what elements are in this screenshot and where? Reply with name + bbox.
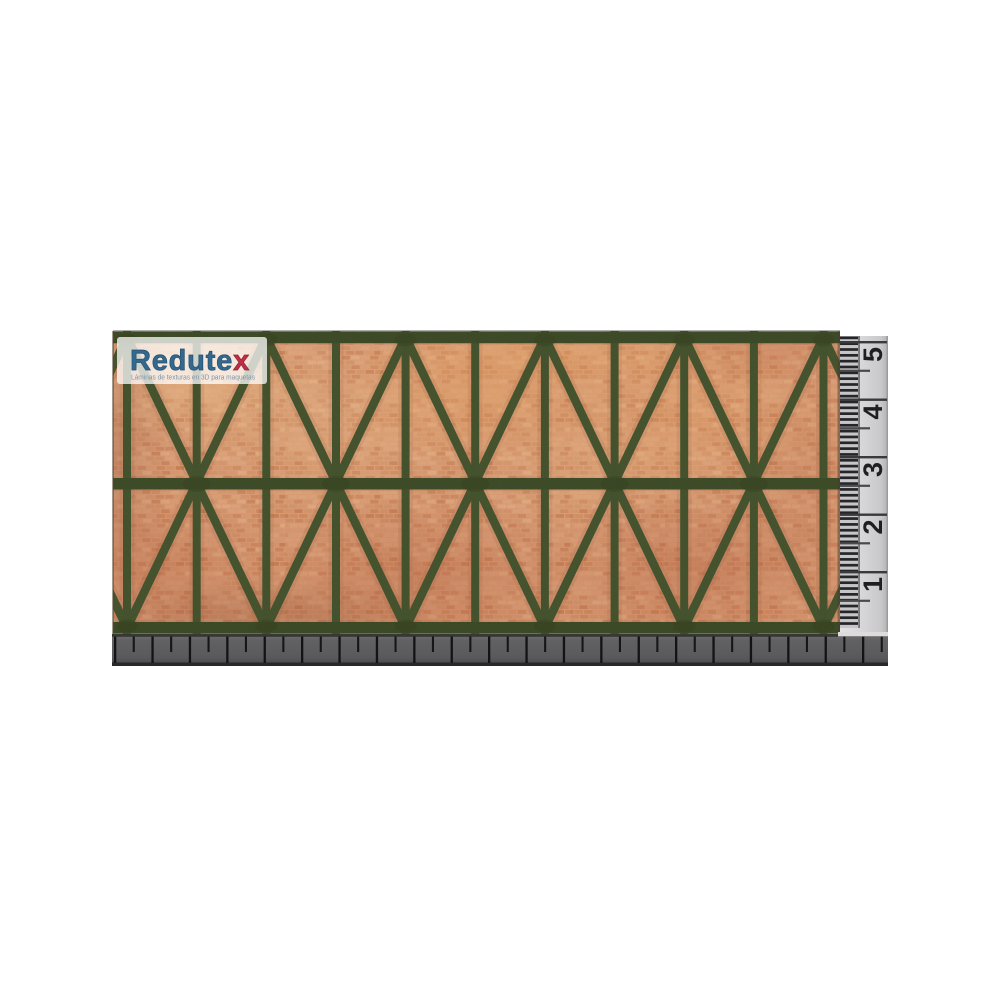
svg-text:2: 2 (858, 519, 888, 534)
svg-text:1: 1 (858, 577, 888, 592)
svg-text:3: 3 (858, 462, 888, 477)
svg-text:4: 4 (858, 404, 888, 419)
svg-text:5: 5 (858, 347, 888, 362)
svg-text:Redutex: Redutex (130, 345, 250, 377)
svg-text:Láminas de texturas en 3D para: Láminas de texturas en 3D para maquetas (131, 375, 255, 382)
